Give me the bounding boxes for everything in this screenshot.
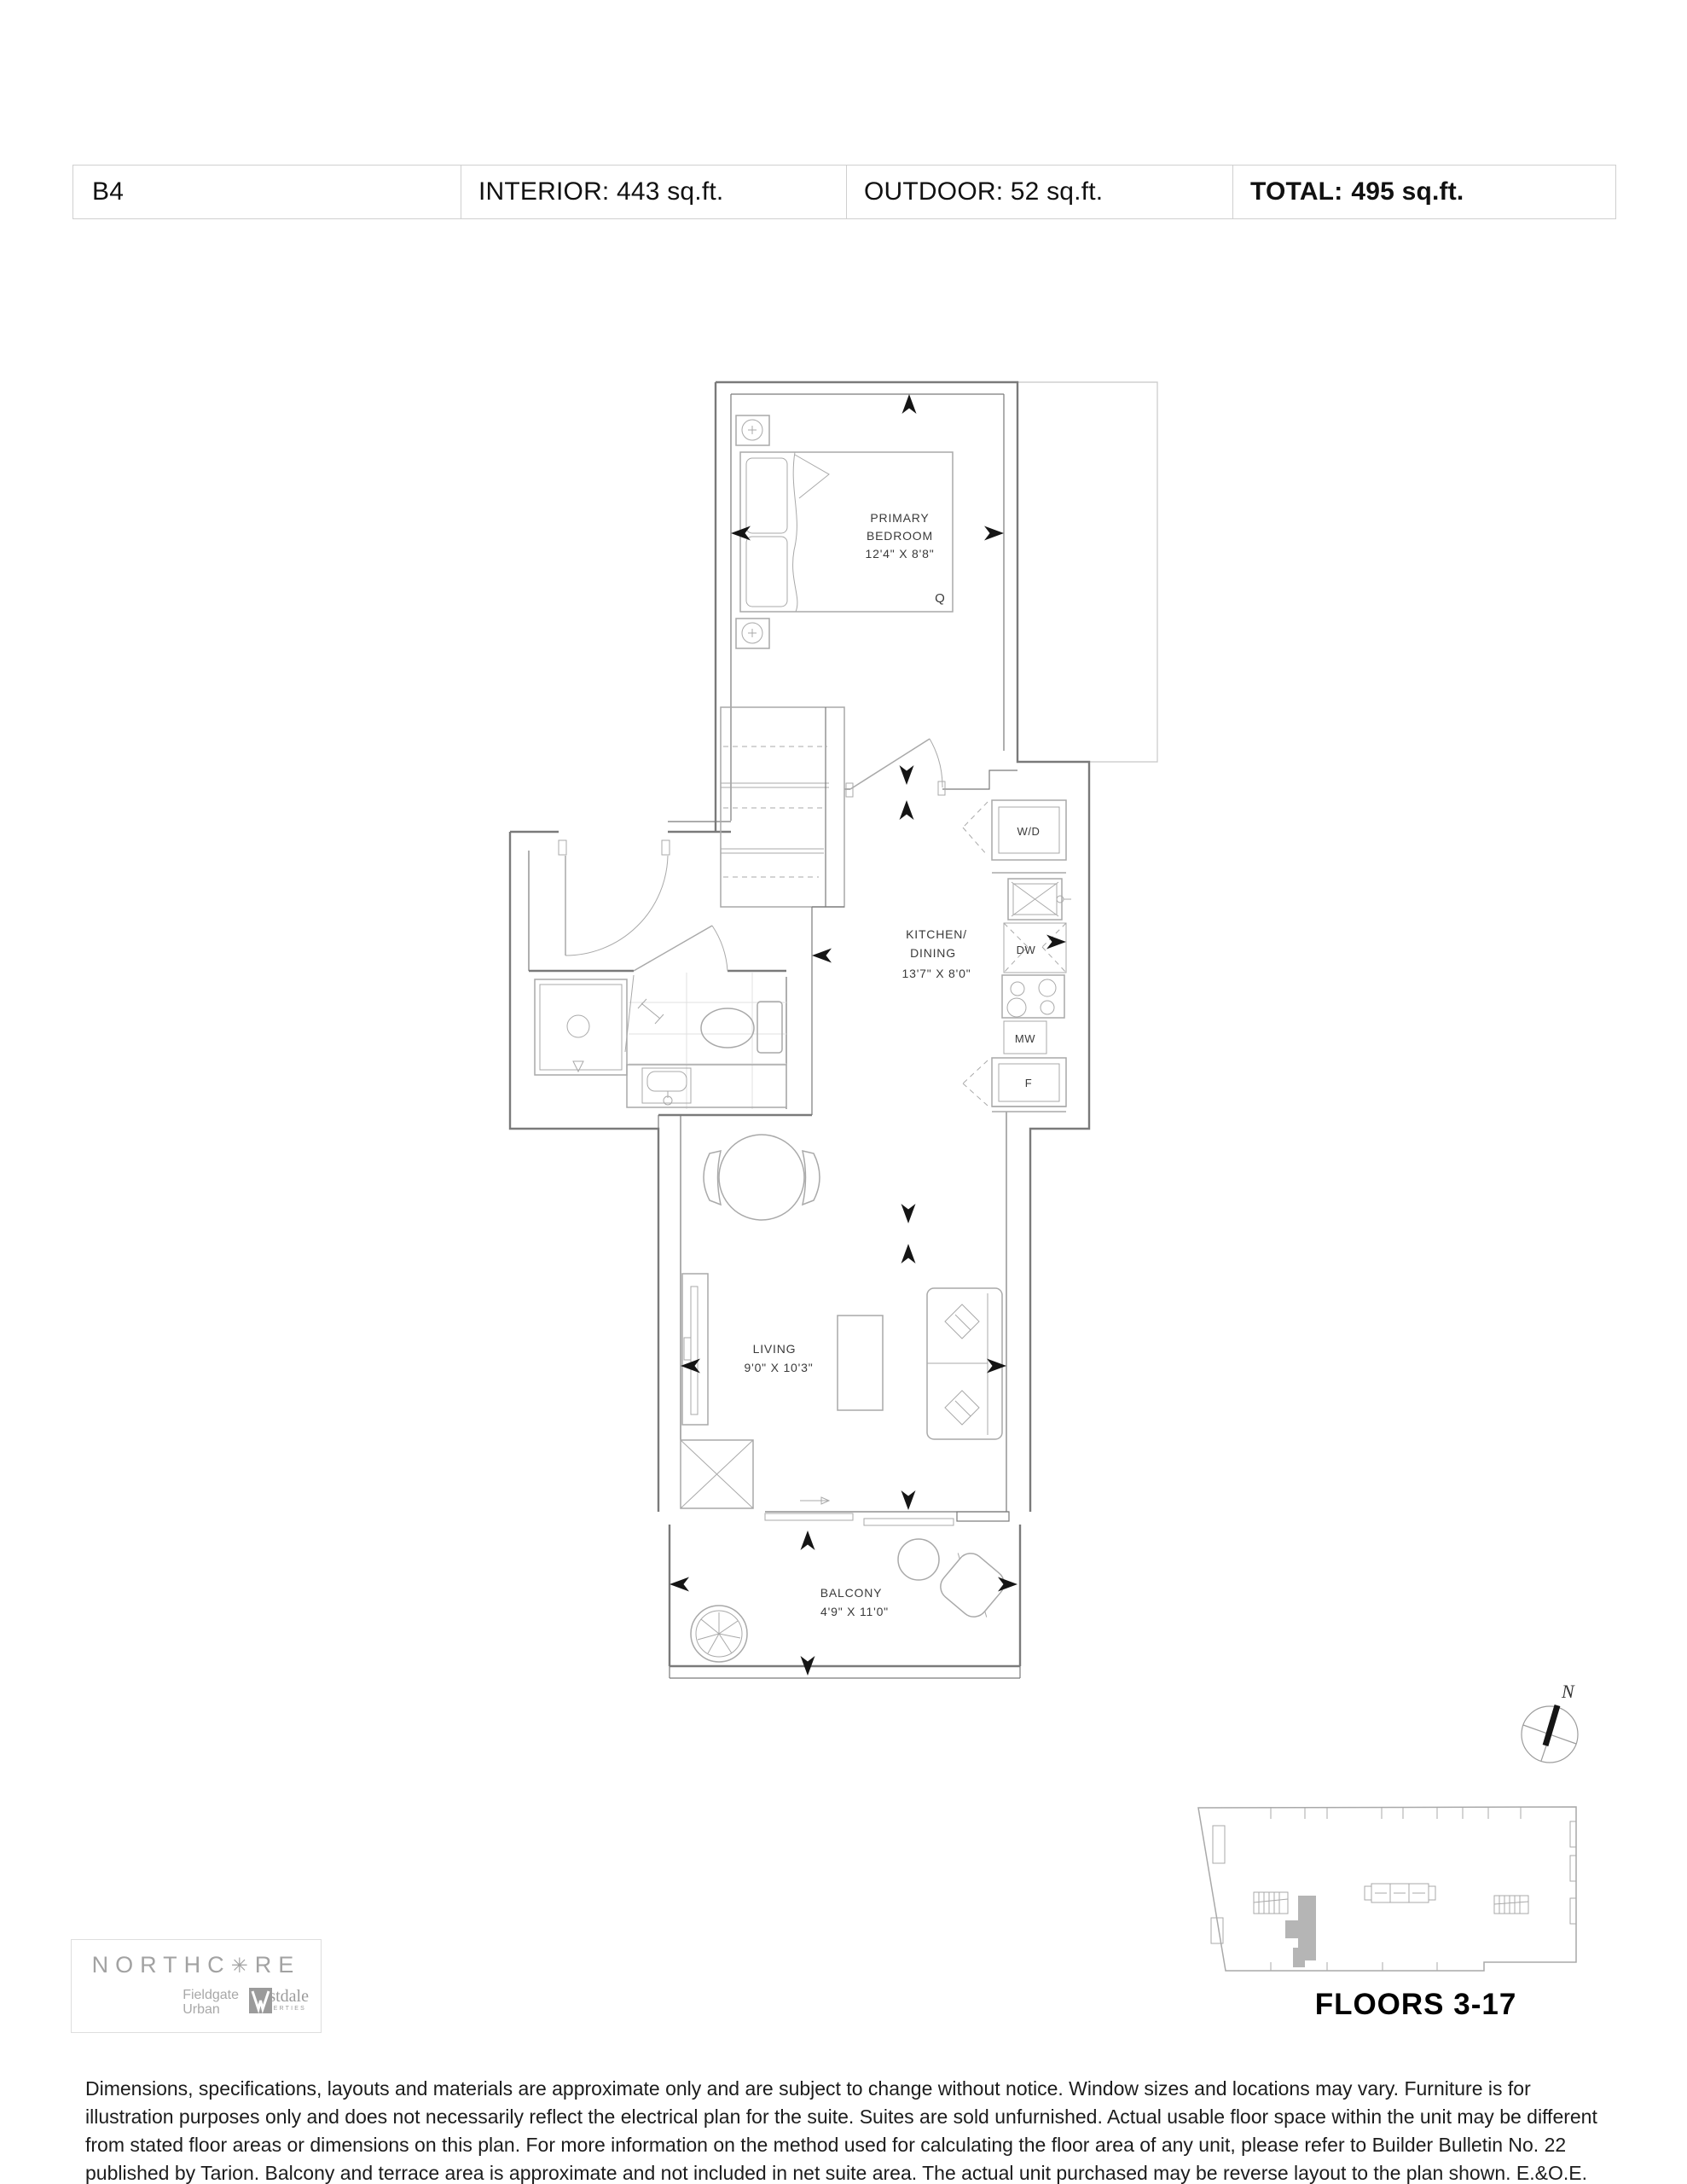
toilet (701, 1002, 782, 1053)
fridge: F (963, 1058, 1066, 1107)
shaft (681, 1440, 753, 1508)
bedroom-label: PRIMARY (870, 511, 929, 525)
outdoor-area: OUTDOOR: 52 sq.ft. (847, 166, 1233, 218)
balcony-dims: 4'9" X 11'0" (820, 1605, 889, 1618)
primary-bedroom: Q PRIMARY BEDROOM 12'4" X 8'8" (736, 415, 953, 648)
northcore-gear-icon: ✳ (231, 1955, 255, 1978)
balcony-table (898, 1539, 939, 1580)
north-compass: N (1497, 1668, 1603, 1770)
westdale-logo: westdale PROPERTIES (249, 1988, 309, 2012)
living-room: LIVING 9'0" X 10'3" (681, 1274, 1002, 1508)
svg-text:F: F (1025, 1077, 1033, 1089)
svg-text:MW: MW (1015, 1032, 1035, 1045)
living-dims: 9'0" X 10'3" (745, 1361, 814, 1374)
bedroom-closet (721, 707, 844, 971)
dining-table (704, 1135, 820, 1220)
nightstand (736, 619, 769, 648)
total-area: TOTAL: 495 sq.ft. (1233, 166, 1615, 218)
balcony: BALCONY 4'9" X 11'0" (670, 1525, 1020, 1678)
coffee-table (838, 1316, 883, 1410)
keyplan-floors-label: FLOORS 3-17 (1254, 1988, 1578, 2022)
cooktop (1002, 975, 1064, 1018)
logo-box: NORTHC✳RE Fieldgate Urban westdale PROPE… (71, 1939, 322, 2033)
keyplan-unit-highlight (1285, 1896, 1316, 1967)
svg-text:DW: DW (1017, 944, 1036, 956)
total-label: TOTAL: (1250, 177, 1342, 206)
north-label: N (1561, 1681, 1575, 1702)
entry-door (844, 739, 1017, 797)
microwave: MW (1004, 1021, 1046, 1054)
kitchen-sink (1008, 879, 1071, 920)
compass-needle (1545, 1705, 1557, 1745)
keyplan-building (1198, 1807, 1576, 1971)
dishwasher: DW (1004, 923, 1066, 973)
keyplan-elevators (1365, 1884, 1435, 1902)
living-label: LIVING (753, 1342, 797, 1356)
neighbour-wall (1017, 382, 1157, 762)
total-value: 495 sq.ft. (1351, 177, 1464, 206)
bedroom-dims: 12'4" X 8'8" (866, 547, 935, 561)
washer-dryer: W/D (992, 800, 1066, 860)
shower (535, 975, 664, 1075)
kitchen-appliances: W/D DW (963, 800, 1071, 1112)
interior-area: INTERIOR: 443 sq.ft. (461, 166, 847, 218)
svg-text:BEDROOM: BEDROOM (867, 529, 933, 543)
unit-name: B4 (73, 166, 461, 218)
balcony-label: BALCONY (820, 1586, 883, 1600)
westdale-logo-mark (249, 1988, 272, 2013)
tv-unit (682, 1274, 708, 1425)
kitchen-dims: 13'7" X 8'0" (902, 967, 971, 980)
northcore-logo: NORTHC✳RE (72, 1952, 321, 1978)
bedroom-door (559, 840, 670, 955)
bed-size-marker: Q (935, 591, 945, 606)
fieldgate-urban-logo: Fieldgate Urban (183, 1988, 239, 2017)
spec-bar: B4 INTERIOR: 443 sq.ft. OUTDOOR: 52 sq.f… (72, 165, 1616, 219)
floorplan-drawing: W/D DW (478, 341, 1177, 1757)
floorplan-page: B4 INTERIOR: 443 sq.ft. OUTDOOR: 52 sq.f… (0, 0, 1687, 2184)
sliding-door (765, 1497, 1009, 1525)
nightstand (736, 415, 769, 445)
bathroom (529, 926, 812, 1115)
disclaimer-text: Dimensions, specifications, layouts and … (85, 2075, 1615, 2184)
kitchen-label: KITCHEN/ (906, 927, 967, 941)
svg-text:W/D: W/D (1017, 825, 1040, 838)
balcony-plant (691, 1606, 747, 1662)
svg-text:DINING: DINING (910, 946, 956, 960)
balcony-chair (931, 1544, 1014, 1625)
vanity-sink (627, 1065, 786, 1107)
key-plan (1186, 1796, 1586, 1979)
